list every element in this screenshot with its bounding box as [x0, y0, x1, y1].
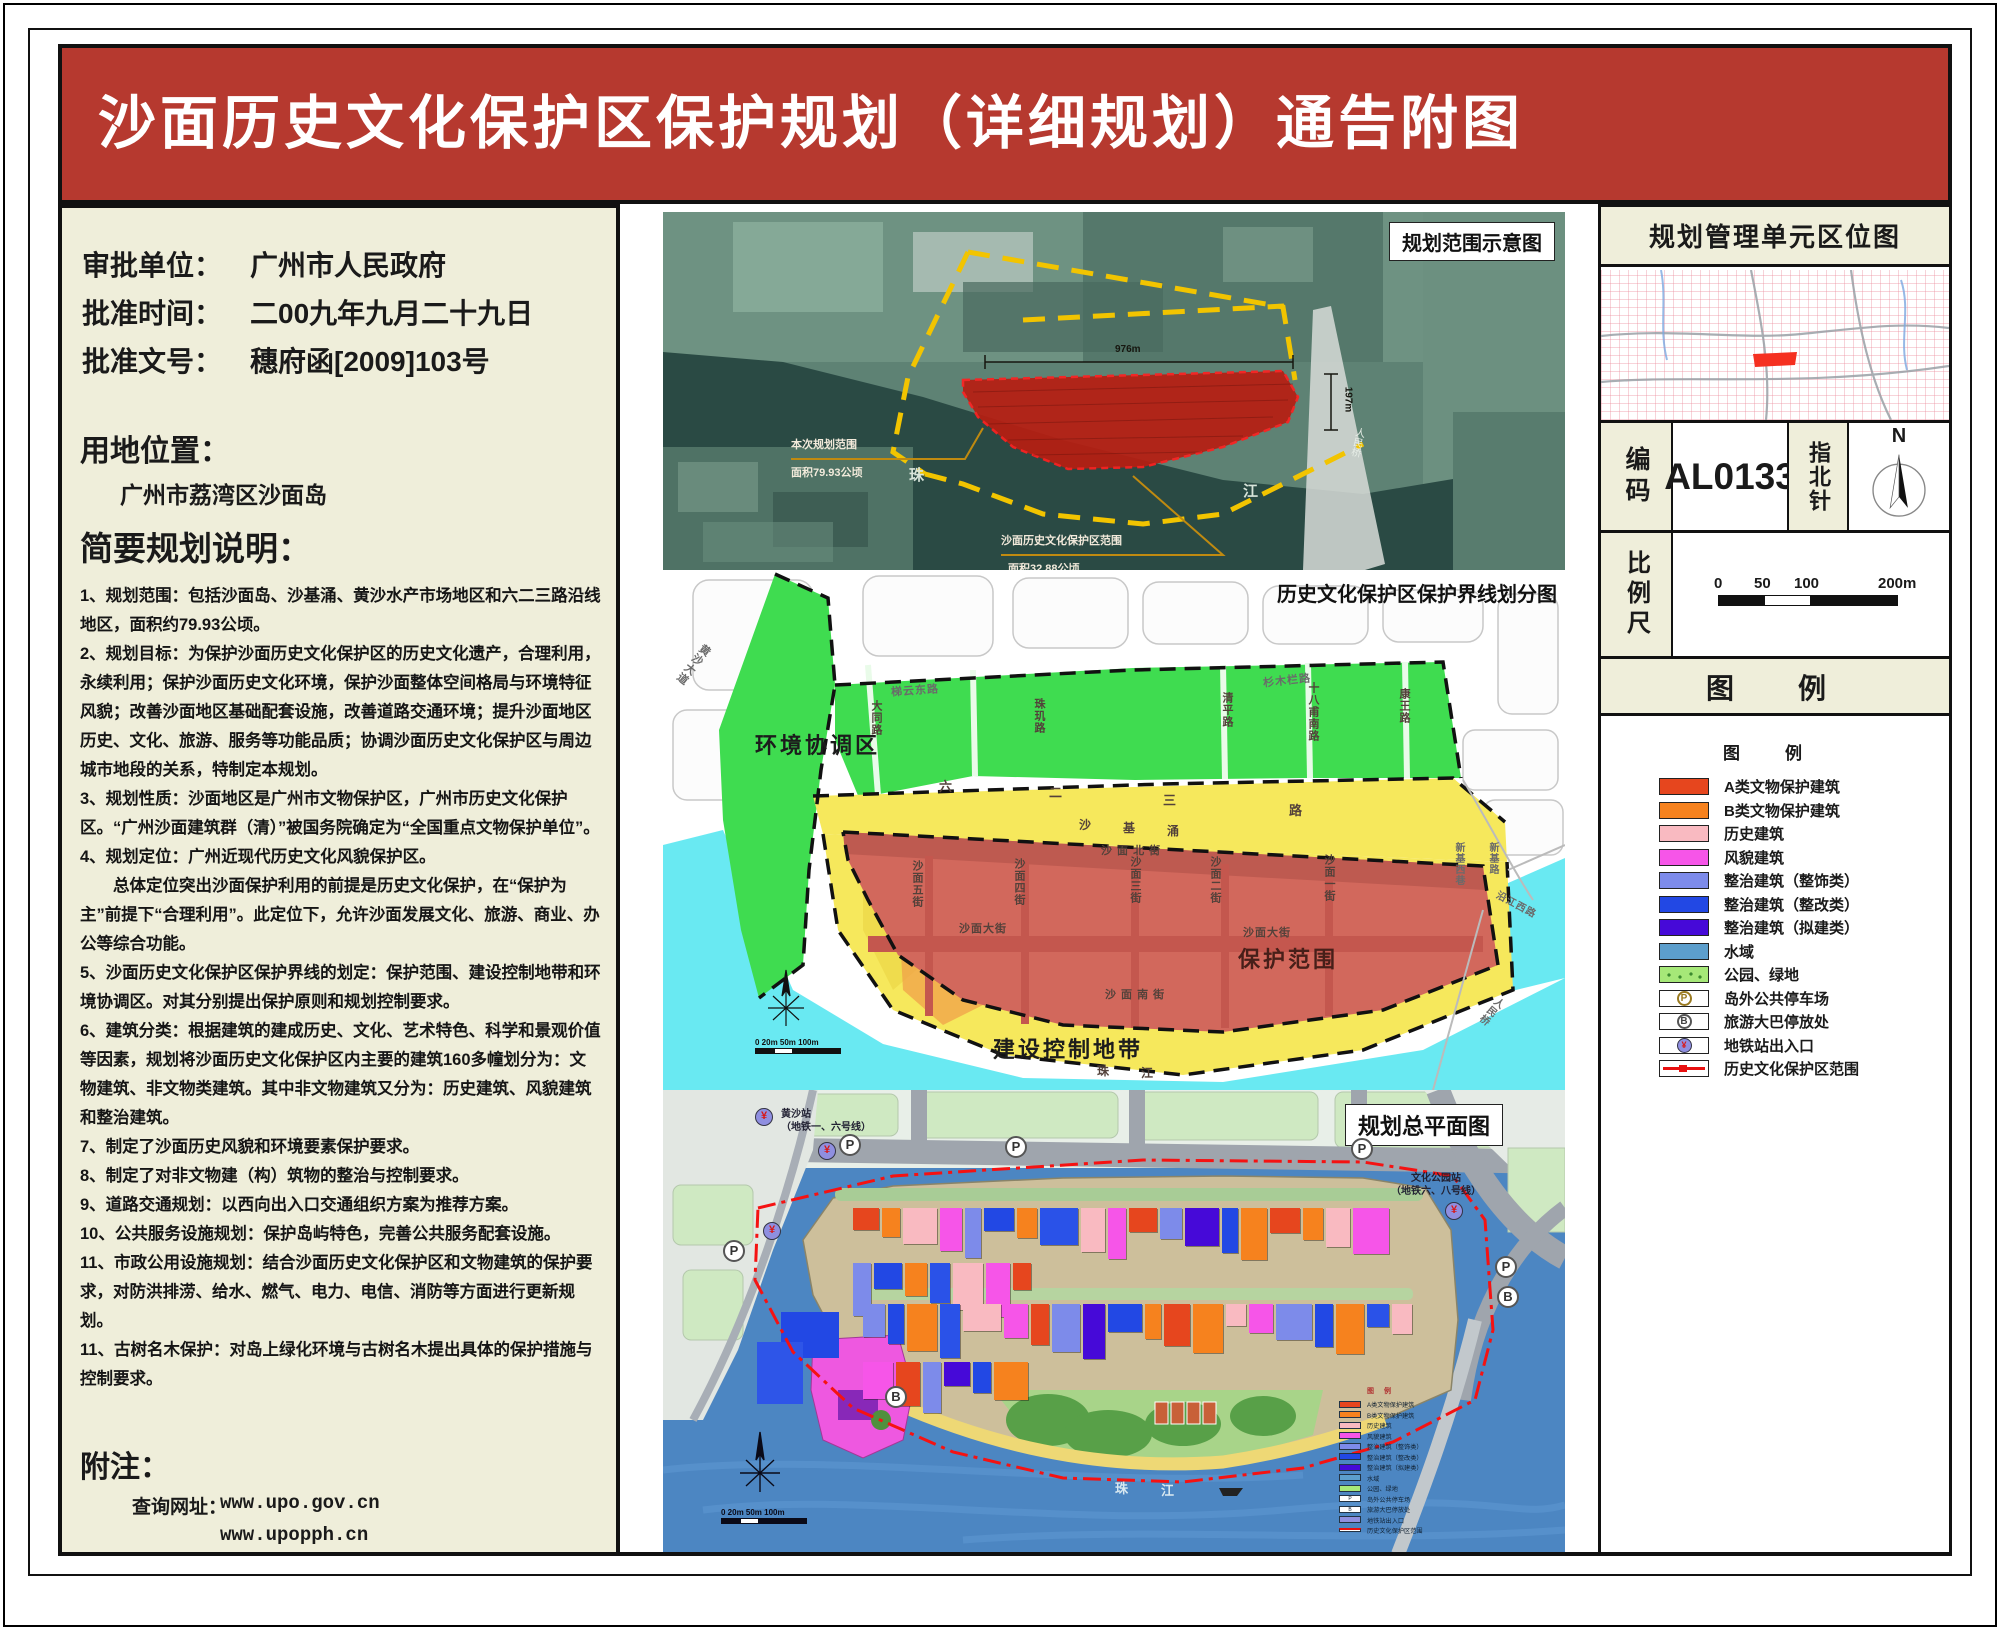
notes-url-1: www.upo.gov.cn: [220, 1492, 380, 1514]
info-panel: 审批单位：广州市人民政府 批准时间：二00九年九月二十九日 批准文号：穗府函[2…: [58, 204, 620, 1556]
master-buildings-row2: [863, 1304, 1419, 1388]
building-block: [1222, 1208, 1238, 1253]
scale-bar-segments: [1718, 595, 1898, 606]
building-block: [1193, 1304, 1223, 1353]
satellite-graphic: [663, 212, 1565, 570]
street-shamian-main-w: 沙面大街: [959, 920, 1007, 936]
summary-text: 1、规划范围：包括沙面岛、沙基涌、黄沙水产市场地区和六二三路沿线地区，面积约79…: [80, 582, 602, 1394]
building-block: [940, 1208, 962, 1251]
legend-item-renovate-decor: 整治建筑（整饰类）: [1659, 869, 1941, 893]
legend-item-historic: 历史建筑: [1659, 822, 1941, 846]
legend-item-b-heritage: B类文物保护建筑: [1659, 799, 1941, 823]
building-block: [1040, 1208, 1078, 1245]
planning-notice-sheet: 沙面历史文化保护区保护规划（详细规划）通告附图 审批单位：广州市人民政府 批准时…: [0, 0, 2000, 1630]
master-buildings-row1: [853, 1208, 1409, 1286]
building-block: [1276, 1304, 1312, 1340]
summary-heading: 简要规划说明：: [80, 522, 311, 570]
zone-yellow-label: 建设控制地带: [993, 1032, 1143, 1064]
code-label: 编码: [1601, 423, 1673, 530]
building-block: [994, 1362, 1028, 1400]
code-value: AL0133: [1673, 423, 1789, 530]
street-shamian-south: 沙 面 南 街: [1105, 986, 1165, 1002]
building-block: [1145, 1304, 1161, 1339]
pearl-char-2: 江: [1141, 1064, 1154, 1081]
street-kangwang: 康王路: [1396, 688, 1412, 724]
building-block: [1164, 1304, 1190, 1346]
parking-icon-1: P: [839, 1134, 861, 1156]
road-623-char-3: 三: [1163, 790, 1177, 809]
street-shamian-1: 沙面一街: [1321, 854, 1337, 902]
street-shamian-3: 沙面三街: [1127, 856, 1143, 904]
pearl-master-1: 珠: [1115, 1478, 1128, 1497]
legend-swatch-historic: [1659, 825, 1709, 842]
huangsha-station-label: 黄沙站 （地铁一、六号线）: [781, 1108, 871, 1134]
dimension-976m: 976m: [1115, 344, 1141, 355]
legend-item-parking: P岛外公共停车场: [1659, 987, 1941, 1011]
legend-subtitle: 图 例: [1723, 739, 1816, 764]
legend-item-renovate-rebuild: 整治建筑（整改类）: [1659, 893, 1941, 917]
building-block: [1326, 1208, 1350, 1247]
mini-legend-item: 地铁站出入口: [1339, 1515, 1491, 1526]
building-block: [963, 1304, 1001, 1331]
street-xinjixi: 新基西巷: [1451, 842, 1466, 886]
approval-date: 批准时间：二00九年九月二十九日: [82, 292, 533, 332]
pearl-river-char-1: 珠: [909, 464, 924, 485]
building-block: [953, 1263, 983, 1310]
legend-header: 图 例: [1601, 656, 1949, 716]
parking-icon-2: P: [1005, 1136, 1027, 1158]
building-block: [1004, 1304, 1028, 1338]
building-block: [1226, 1304, 1246, 1326]
code-row: 编码 AL0133 指北针 N: [1601, 420, 1949, 530]
compass-label: 指北针: [1789, 423, 1849, 530]
mini-legend-item: P岛外公共停车场: [1339, 1494, 1491, 1505]
north-arrow-icon: [1864, 445, 1934, 527]
legend-swatch-park: [1659, 966, 1709, 983]
bus-icon-right: B: [1497, 1286, 1519, 1308]
boundary-line-icon: [1659, 1060, 1709, 1077]
building-block: [1031, 1304, 1049, 1345]
building-block: [1013, 1263, 1031, 1290]
zone-green-label: 环境协调区: [755, 728, 880, 760]
legend-swatch-character: [1659, 849, 1709, 866]
zoning-map-title: 历史文化保护区保护界线划分图: [1277, 578, 1557, 607]
scale-label: 比例尺: [1601, 533, 1673, 656]
metro-icon-3: ¥: [763, 1222, 781, 1240]
legend-item-boundary: 历史文化保护区范围: [1659, 1057, 1941, 1081]
mini-legend-item: B类文物保护建筑: [1339, 1410, 1491, 1421]
building-block: [1249, 1304, 1273, 1333]
legend-swatch-b-heritage: [1659, 802, 1709, 819]
street-shamian-4: 沙面四街: [1011, 858, 1027, 906]
compass-cell: N: [1849, 423, 1949, 530]
legend-item-bus: B旅游大巴停放处: [1659, 1010, 1941, 1034]
building-block: [1353, 1208, 1389, 1254]
mini-legend-item: 公园、绿地: [1339, 1483, 1491, 1494]
plan-area-label: 面积79.93公顷: [791, 464, 863, 480]
building-block: [1160, 1208, 1182, 1239]
master-mini-legend-title: 图 例: [1367, 1386, 1491, 1396]
bus-icon-island: B: [885, 1386, 907, 1408]
master-plan-map: 规划总平面图 ¥ 黄沙站 （地铁一、六号线） ¥ ¥ ¥ 文化公园站 （地铁六、…: [663, 1090, 1565, 1554]
street-datong: 大同路: [868, 700, 884, 736]
shaji-creek-char-2: 基: [1123, 819, 1136, 836]
building-block: [973, 1362, 991, 1393]
mini-legend-item: 整治建筑（拟建类）: [1339, 1462, 1491, 1473]
metro-icon-2: ¥: [818, 1142, 836, 1160]
street-shamian-2: 沙面二街: [1207, 856, 1223, 904]
building-block: [1081, 1208, 1105, 1252]
legend-item-water: 水域: [1659, 940, 1941, 964]
bottom-rule: [58, 1552, 1952, 1556]
pearl-char-1: 珠: [1097, 1062, 1110, 1079]
street-xinji: 新基路: [1485, 842, 1500, 875]
scale-bar: 0 50 100 200m: [1718, 595, 1898, 606]
building-block: [1185, 1208, 1219, 1246]
building-block: [1083, 1304, 1105, 1359]
building-block: [1241, 1208, 1267, 1260]
legend-item-park: 公园、绿地: [1659, 963, 1941, 987]
road-623-char-4: 路: [1289, 800, 1303, 819]
location-heading: 用地位置：: [80, 426, 230, 470]
mini-legend-item: 历史文化保护区范围: [1339, 1525, 1491, 1536]
satellite-map-title: 规划范围示意图: [1389, 222, 1555, 261]
building-block: [1129, 1208, 1157, 1232]
building-block: [944, 1362, 970, 1386]
approval-unit: 审批单位：广州市人民政府: [82, 244, 446, 284]
mini-legend-item: 历史建筑: [1339, 1420, 1491, 1431]
scale-cell: 0 50 100 200m: [1673, 533, 1949, 656]
location-value: 广州市荔湾区沙面岛: [120, 476, 327, 510]
unit-map-title: 规划管理单元区位图: [1601, 207, 1949, 267]
street-shibafunan: 十八甫南路: [1305, 682, 1321, 742]
scale-row: 比例尺 0 50 100 200m: [1601, 530, 1949, 656]
shaji-creek-char-3: 涌: [1167, 822, 1180, 839]
building-block: [874, 1263, 902, 1289]
north-arrow-master: [735, 1430, 785, 1496]
building-block: [1367, 1304, 1389, 1327]
building-block: [1392, 1304, 1412, 1334]
street-shamian-5: 沙面五街: [909, 860, 925, 908]
building-block: [903, 1208, 937, 1244]
master-mini-legend: 图 例 A类文物保护建筑B类文物保护建筑历史建筑风貌建筑整治建筑（整饰类）整治建…: [1339, 1386, 1491, 1544]
road-623-char-1: 六: [939, 776, 953, 795]
plan-scope-label: 本次规划范围: [791, 436, 857, 452]
notes-label: 查询网址：: [132, 1492, 227, 1519]
building-block: [984, 1208, 1014, 1231]
street-tiyundong: 梯云东路: [891, 680, 940, 699]
reserve-scope-label: 沙面历史文化保护区范围: [1001, 532, 1122, 548]
reserve-area-label: 面积32.88公顷: [1008, 560, 1080, 570]
master-mini-legend-items: A类文物保护建筑B类文物保护建筑历史建筑风貌建筑整治建筑（整饰类）整治建筑（整改…: [1339, 1399, 1491, 1536]
building-block: [1017, 1208, 1037, 1238]
building-block: [1108, 1304, 1142, 1332]
legend-item-renovate-planned: 整治建筑（拟建类）: [1659, 916, 1941, 940]
unit-map-roads: [1601, 270, 1949, 420]
building-block: [965, 1208, 981, 1258]
building-block: [882, 1208, 900, 1237]
building-block: [923, 1362, 941, 1413]
street-shamian-main-e: 沙面大街: [1243, 924, 1291, 940]
building-block: [1052, 1304, 1080, 1352]
building-block: [1315, 1304, 1333, 1347]
mini-legend-item: 水域: [1339, 1473, 1491, 1484]
metro-icon-wenhua: ¥: [1445, 1202, 1463, 1220]
bus-icon: B: [1659, 1013, 1709, 1030]
metro-icon-huangsha: ¥: [755, 1108, 773, 1126]
legend-swatch-renovate-decor: [1659, 872, 1709, 889]
building-block: [905, 1263, 927, 1296]
building-block: [930, 1263, 950, 1303]
street-zhuji: 珠玑路: [1031, 698, 1047, 734]
wenhua-station-label: 文化公园站 （地铁六、八号线）: [1391, 1172, 1481, 1198]
legend-body: 图 例 A类文物保护建筑 B类文物保护建筑 历史建筑 风貌建筑 整治建筑（整饰类…: [1601, 719, 1949, 1553]
mini-legend-item: 整治建筑（整饰类）: [1339, 1441, 1491, 1452]
building-block: [1270, 1208, 1300, 1233]
legend-swatch-renovate-planned: [1659, 919, 1709, 936]
unit-location-map: [1601, 270, 1949, 420]
zone-red-label: 保护范围: [1238, 942, 1338, 974]
scalebar-master: 0 20m 50m 100m: [721, 1508, 807, 1524]
legend-item-character: 风貌建筑: [1659, 846, 1941, 870]
building-block: [853, 1208, 879, 1230]
satellite-scope-map: 规划范围示意图 976m 197m 本次规划范围 面积79.93公顷 沙面历史文…: [663, 212, 1565, 570]
building-block: [1303, 1208, 1323, 1240]
mini-legend-item: 风貌建筑: [1339, 1431, 1491, 1442]
scalebar-zoning: 0 20m 50m 100m: [755, 1038, 841, 1054]
legend-swatch-renovate-rebuild: [1659, 896, 1709, 913]
legend-item-a-heritage: A类文物保护建筑: [1659, 775, 1941, 799]
metro-icon: ¥: [1659, 1037, 1709, 1054]
building-block: [907, 1304, 937, 1351]
pearl-river-char-2: 江: [1243, 480, 1258, 501]
parking-icon-right: P: [1495, 1256, 1517, 1278]
pearl-master-2: 江: [1161, 1480, 1174, 1499]
dimension-197m: 197m: [1342, 387, 1353, 413]
page-title: 沙面历史文化保护区保护规划（详细规划）通告附图: [98, 48, 1524, 200]
legend-swatch-water: [1659, 943, 1709, 960]
legend-rows: A类文物保护建筑 B类文物保护建筑 历史建筑 风貌建筑 整治建筑（整饰类） 整治…: [1659, 775, 1941, 1081]
parking-icon-3: P: [1351, 1138, 1373, 1160]
street-qingping: 清平路: [1219, 692, 1235, 728]
north-arrow-zoning: [763, 968, 809, 1030]
notes-heading: 附注：: [80, 1442, 170, 1486]
building-block: [940, 1304, 960, 1358]
parking-icon: P: [1659, 990, 1709, 1007]
shaji-creek-char-1: 沙: [1079, 816, 1092, 833]
building-block: [1108, 1208, 1126, 1259]
side-panel: 规划管理单元区位图 编码 AL0133 指北针: [1598, 204, 1952, 1556]
mini-legend-item: A类文物保护建筑: [1339, 1399, 1491, 1410]
notes-url-2: www.upopph.cn: [220, 1524, 368, 1546]
road-623-char-2: 二: [1049, 782, 1063, 801]
mini-legend-item: B旅游大巴停放处: [1339, 1504, 1491, 1515]
mini-legend-item: 整治建筑（整改类）: [1339, 1452, 1491, 1463]
legend-item-metro: ¥地铁站出入口: [1659, 1034, 1941, 1058]
approval-doc: 批准文号：穗府函[2009]103号: [82, 340, 490, 380]
building-block: [1336, 1304, 1364, 1354]
legend-swatch-a-heritage: [1659, 778, 1709, 795]
building-block: [863, 1304, 885, 1337]
parking-icon-4: P: [723, 1240, 745, 1262]
zoning-boundary-map: 历史文化保护区保护界线划分图 环境协调区 保护范围 建设控制地带 梯云东路 大同…: [663, 570, 1565, 1090]
title-banner: 沙面历史文化保护区保护规划（详细规划）通告附图: [58, 44, 1952, 204]
building-block: [888, 1304, 904, 1344]
